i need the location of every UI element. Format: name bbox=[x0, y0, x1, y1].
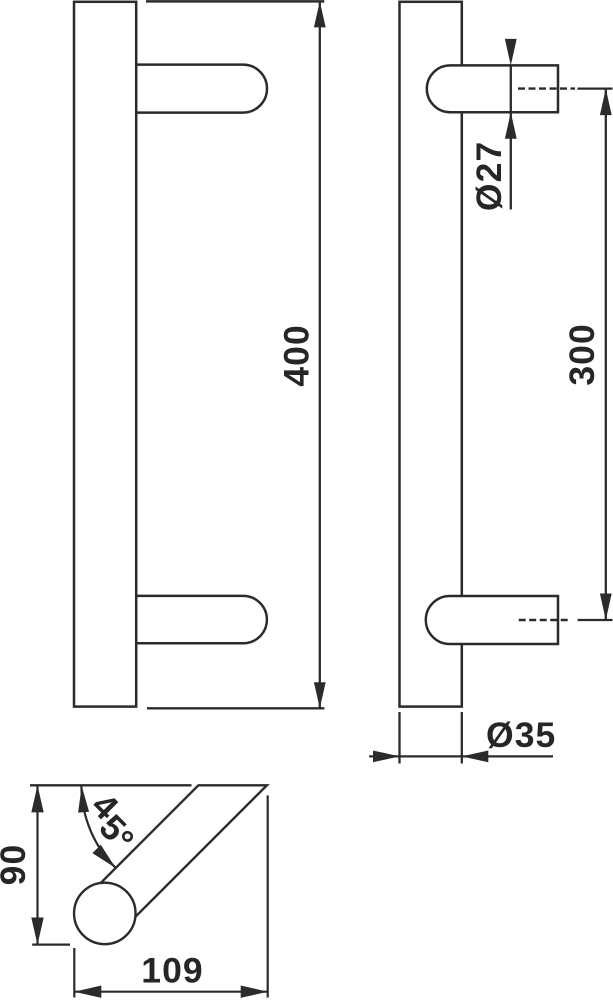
svg-text:90: 90 bbox=[0, 844, 33, 886]
svg-text:Ø35: Ø35 bbox=[486, 715, 556, 755]
svg-text:300: 300 bbox=[562, 323, 602, 386]
svg-text:400: 400 bbox=[277, 324, 317, 387]
svg-text:Ø27: Ø27 bbox=[469, 141, 509, 211]
svg-text:109: 109 bbox=[141, 951, 204, 991]
